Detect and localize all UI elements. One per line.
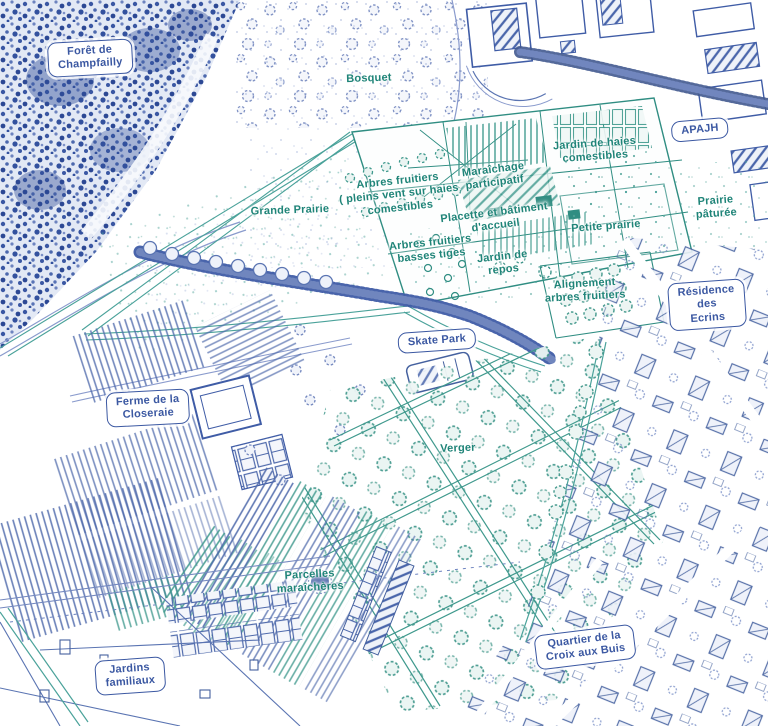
landscape-plan-map: Forêt de ChampfaillyBosquetAPAJHJardin d… (0, 0, 768, 726)
map-illustration (0, 0, 768, 726)
